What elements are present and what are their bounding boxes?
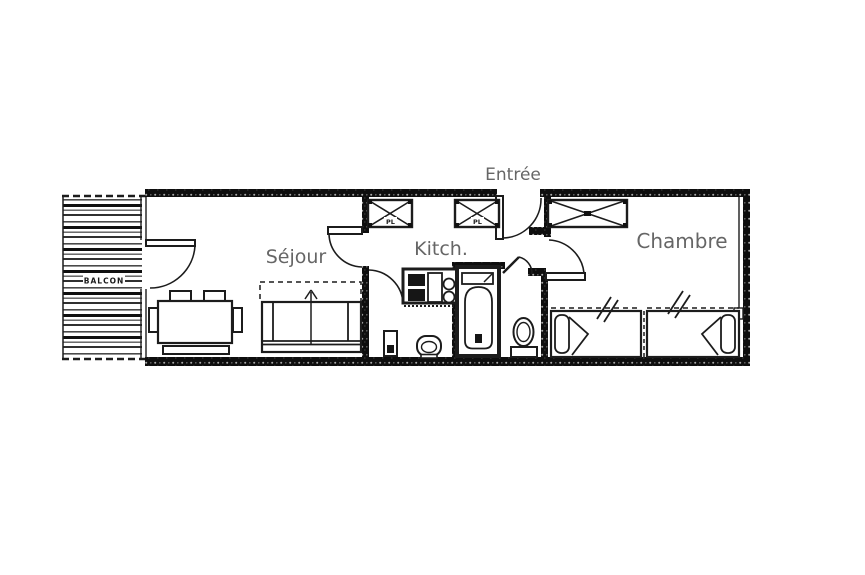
chair (149, 308, 158, 332)
pillow (555, 315, 569, 353)
closet-corner (368, 223, 372, 227)
closet-corner (495, 223, 499, 227)
balcony-door-leaf (146, 240, 195, 246)
closet-label: PL (473, 218, 482, 226)
label-entree: Entrée (485, 165, 541, 185)
pillow (721, 315, 735, 353)
balcony-label: BALCON (84, 277, 124, 286)
radiator-detail (387, 345, 394, 353)
bedroom-door-leaf (546, 273, 585, 280)
washbasin (417, 336, 441, 358)
closet-corner (623, 223, 627, 227)
bathtub (457, 267, 499, 356)
radiator (384, 331, 397, 356)
stove-burner (444, 292, 455, 303)
wall-wc-bedroom (541, 276, 548, 358)
dining-table (158, 301, 232, 343)
bench (163, 346, 229, 354)
bedroom-closet (548, 200, 627, 227)
kitchen-counter (403, 269, 458, 306)
kitchen-sink (428, 273, 442, 302)
chair (204, 291, 225, 301)
oven (408, 289, 425, 301)
closet-pl-2: PL (455, 200, 499, 227)
label-chambre: Chambre (636, 229, 727, 253)
floor-plan-page: BALCON (0, 0, 865, 575)
closet-corner (455, 200, 459, 204)
closet-corner (408, 223, 412, 227)
chair (170, 291, 191, 301)
closet-corner (623, 200, 627, 204)
closet-center-nub (584, 211, 591, 216)
oven (408, 274, 425, 286)
closet-corner (548, 223, 552, 227)
tub-drain (475, 334, 482, 343)
toilet-tank (511, 347, 537, 357)
wall-living-kitchen-lower (362, 266, 369, 359)
wall-top-left-segment (145, 189, 497, 197)
closet-corner (495, 200, 499, 204)
wall-right (743, 189, 750, 366)
living-kitchen-door-leaf (328, 227, 362, 234)
wall-bottom (145, 357, 750, 366)
closet-corner (368, 200, 372, 204)
label-kitchen: Kitch. (414, 238, 468, 260)
stove-burner (444, 279, 455, 290)
closet-label: PL (386, 218, 395, 226)
balcony: BALCON (62, 196, 147, 359)
basin-base (421, 355, 437, 359)
closet-corner (455, 223, 459, 227)
closets: PL PL (368, 200, 627, 227)
closet-corner (408, 200, 412, 204)
wall-top-right-segment (540, 189, 750, 197)
floor-plan-drawing: BALCON (0, 0, 865, 575)
chair (233, 308, 242, 332)
closet-pl-1: PL (368, 200, 412, 227)
label-sejour: Séjour (266, 246, 327, 268)
closet-corner (548, 200, 552, 204)
wall-hall-return-nub (529, 227, 544, 235)
